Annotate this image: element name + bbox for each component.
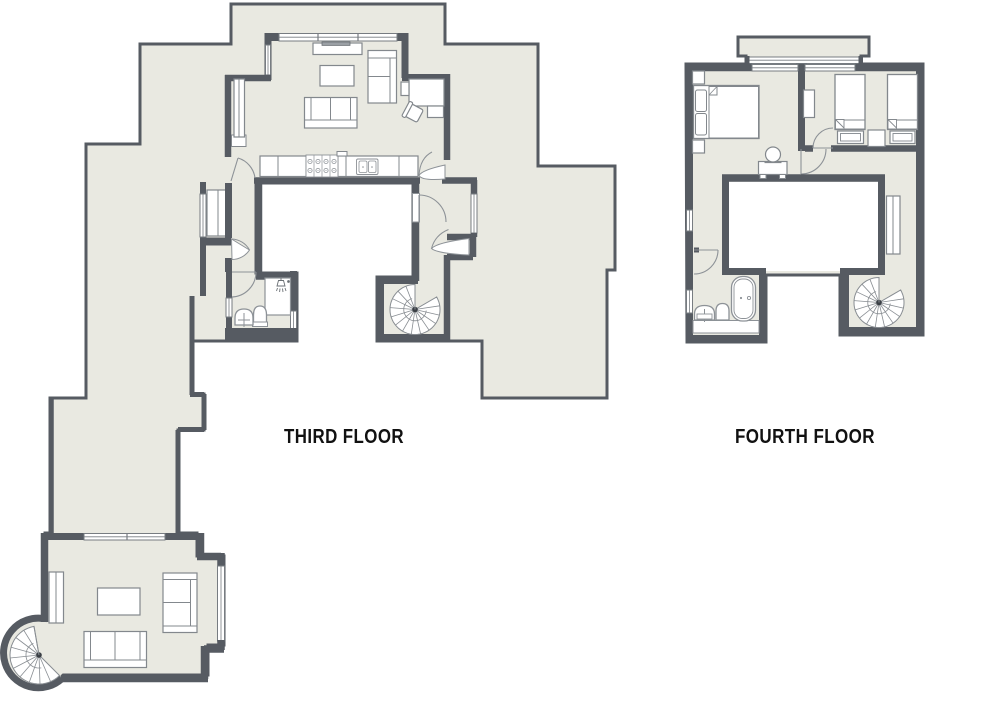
- svg-text:THIRD FLOOR: THIRD FLOOR: [284, 426, 404, 448]
- svg-text:FOURTH FLOOR: FOURTH FLOOR: [735, 426, 875, 448]
